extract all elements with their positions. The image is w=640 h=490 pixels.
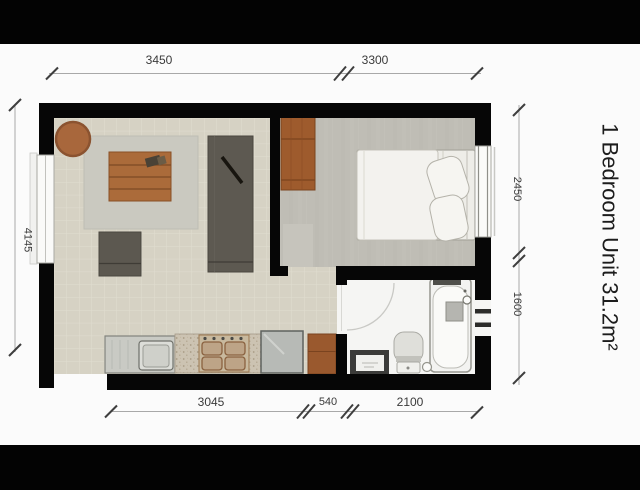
svg-text:2450: 2450 <box>511 177 523 201</box>
svg-text:3300: 3300 <box>362 53 389 67</box>
svg-text:1 Bedroom Unit 31.2m²: 1 Bedroom Unit 31.2m² <box>598 123 623 350</box>
svg-text:3045: 3045 <box>198 395 225 409</box>
svg-text:2100: 2100 <box>397 395 424 409</box>
svg-text:4145: 4145 <box>22 228 34 252</box>
svg-text:3450: 3450 <box>146 53 173 67</box>
svg-text:540: 540 <box>319 396 337 408</box>
svg-text:1600: 1600 <box>511 292 523 316</box>
